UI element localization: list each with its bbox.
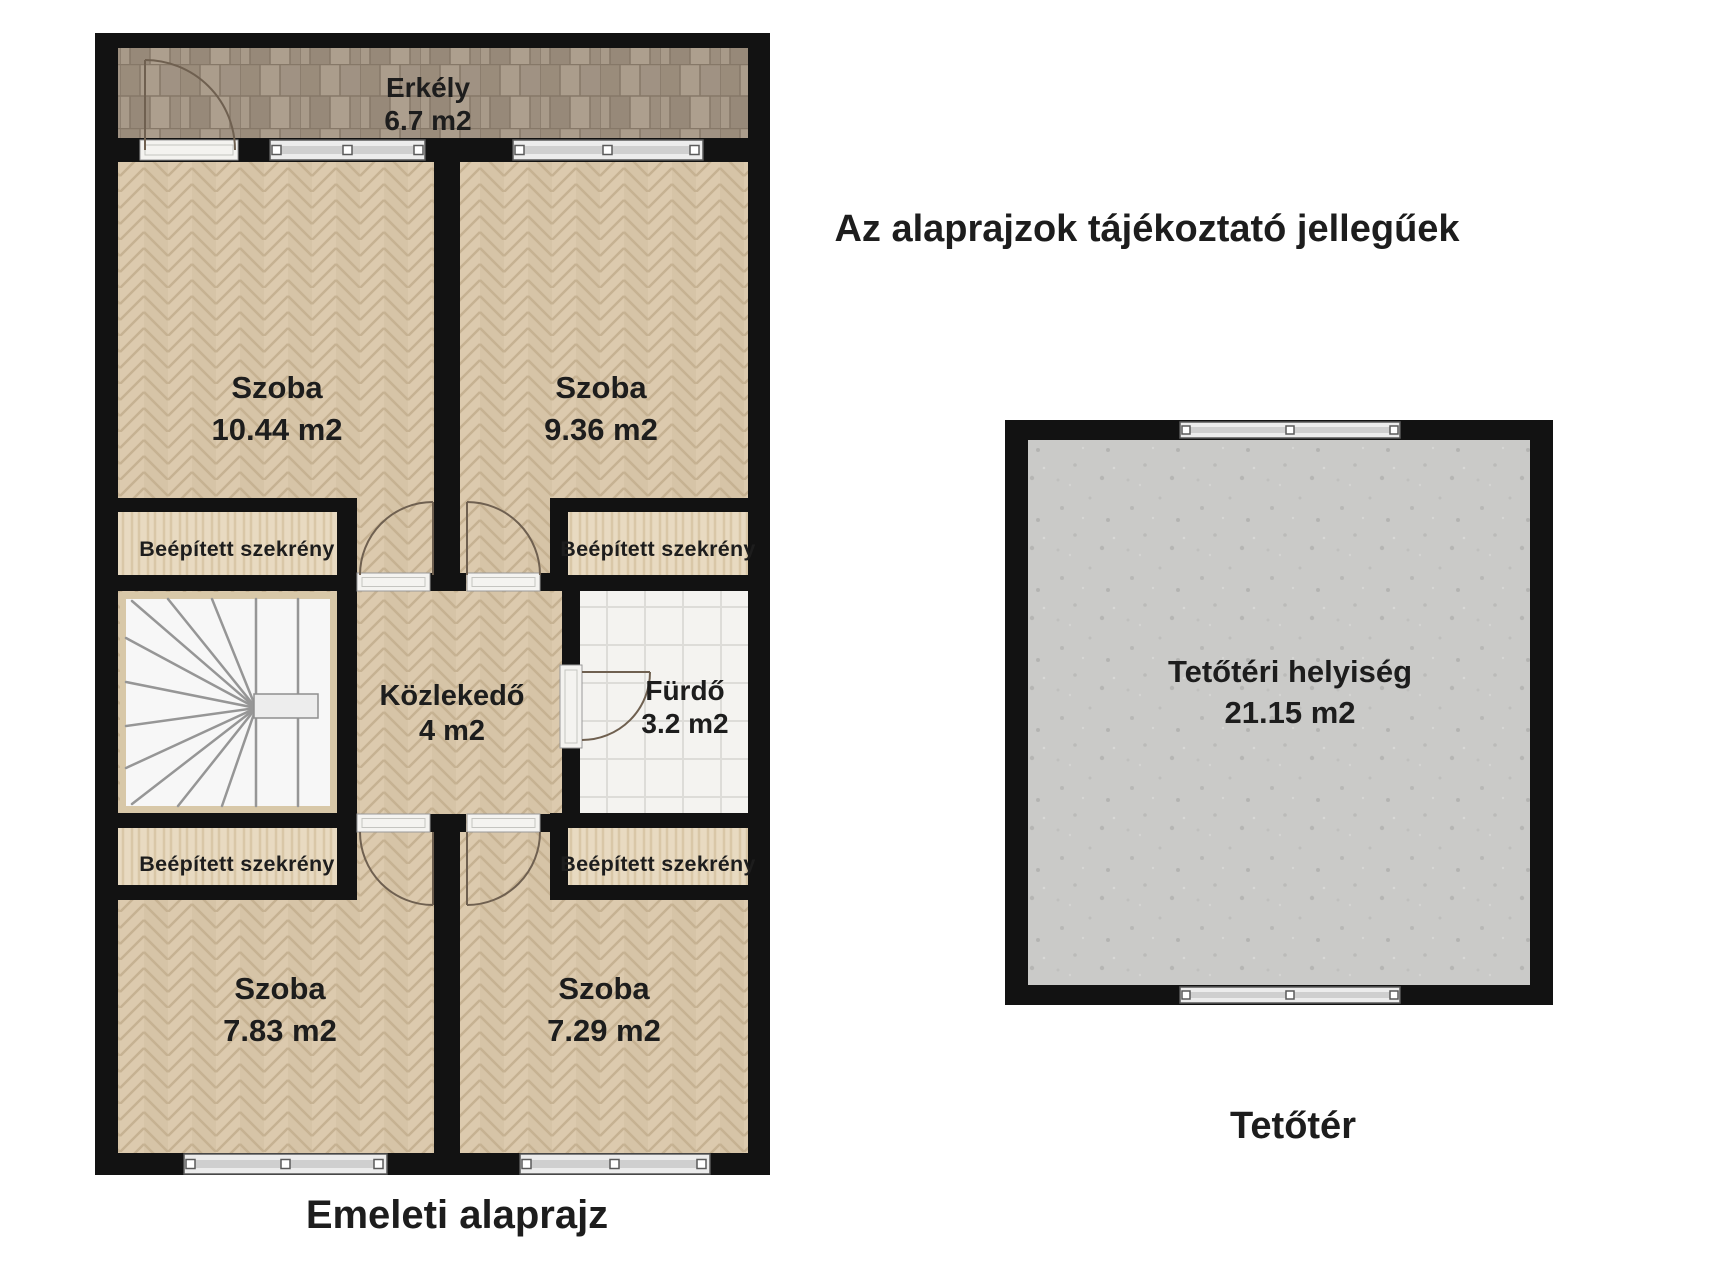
closet-bottom-right-label: Beépített szekrény (560, 852, 755, 876)
closet-top-right-label: Beépített szekrény (560, 537, 755, 561)
balcony-door-threshold (140, 140, 238, 160)
bottom-window-right (520, 1154, 710, 1174)
attic-window-top (1180, 422, 1400, 438)
staircase (120, 592, 338, 813)
bathroom-area-label: 3.2 m2 (641, 708, 728, 739)
balcony-name-label: Erkély (386, 72, 470, 103)
room-top-right-name-label: Szoba (555, 370, 647, 405)
hallway-area-label: 4 m2 (419, 715, 485, 747)
room-bottom-right-area-label: 7.29 m2 (547, 1013, 661, 1048)
attic-window-bottom (1180, 987, 1400, 1003)
hall-top-left-threshold (357, 573, 430, 591)
balcony-window-right (513, 140, 703, 160)
floorplan-page: Erkély 6.7 m2 Szoba 10.44 m2 Szoba 9.36 … (0, 0, 1725, 1280)
room-bottom-right-name-label: Szoba (558, 971, 650, 1006)
hall-bottom-left-threshold (357, 814, 430, 832)
attic-plan: Tetőtéri helyiség 21.15 m2 Tetőtér (1005, 420, 1553, 1147)
room-top-left-area-label: 10.44 m2 (212, 412, 343, 447)
attic-room-name-label: Tetőtéri helyiség (1168, 654, 1412, 689)
hallway-name-label: Közlekedő (379, 680, 524, 712)
hall-bottom-right-threshold (467, 814, 540, 832)
attic-caption: Tetőtér (1230, 1105, 1356, 1147)
room-top-left-name-label: Szoba (231, 370, 323, 405)
room-bottom-left-area-label: 7.83 m2 (223, 1013, 337, 1048)
floorplan-canvas: Erkély 6.7 m2 Szoba 10.44 m2 Szoba 9.36 … (0, 0, 1725, 1280)
bathroom-name-label: Fürdő (645, 675, 724, 706)
balcony-area-label: 6.7 m2 (384, 105, 471, 136)
disclaimer-text: Az alaprajzok tájékoztató jellegűek (834, 208, 1460, 250)
hall-top-right-threshold (467, 573, 540, 591)
room-bottom-left-name-label: Szoba (234, 971, 326, 1006)
balcony-window-left (270, 140, 425, 160)
upper-floor-plan: Erkély 6.7 m2 Szoba 10.44 m2 Szoba 9.36 … (95, 33, 770, 1237)
bottom-window-left (184, 1154, 387, 1174)
closet-top-left-label: Beépített szekrény (139, 537, 334, 561)
upper-floor-caption: Emeleti alaprajz (306, 1193, 608, 1237)
bathroom-door-threshold (560, 665, 582, 748)
attic-room-area-label: 21.15 m2 (1225, 695, 1356, 730)
closet-bottom-left-label: Beépített szekrény (139, 852, 334, 876)
staircase-landing-bar (254, 694, 318, 718)
room-top-right-area-label: 9.36 m2 (544, 412, 658, 447)
